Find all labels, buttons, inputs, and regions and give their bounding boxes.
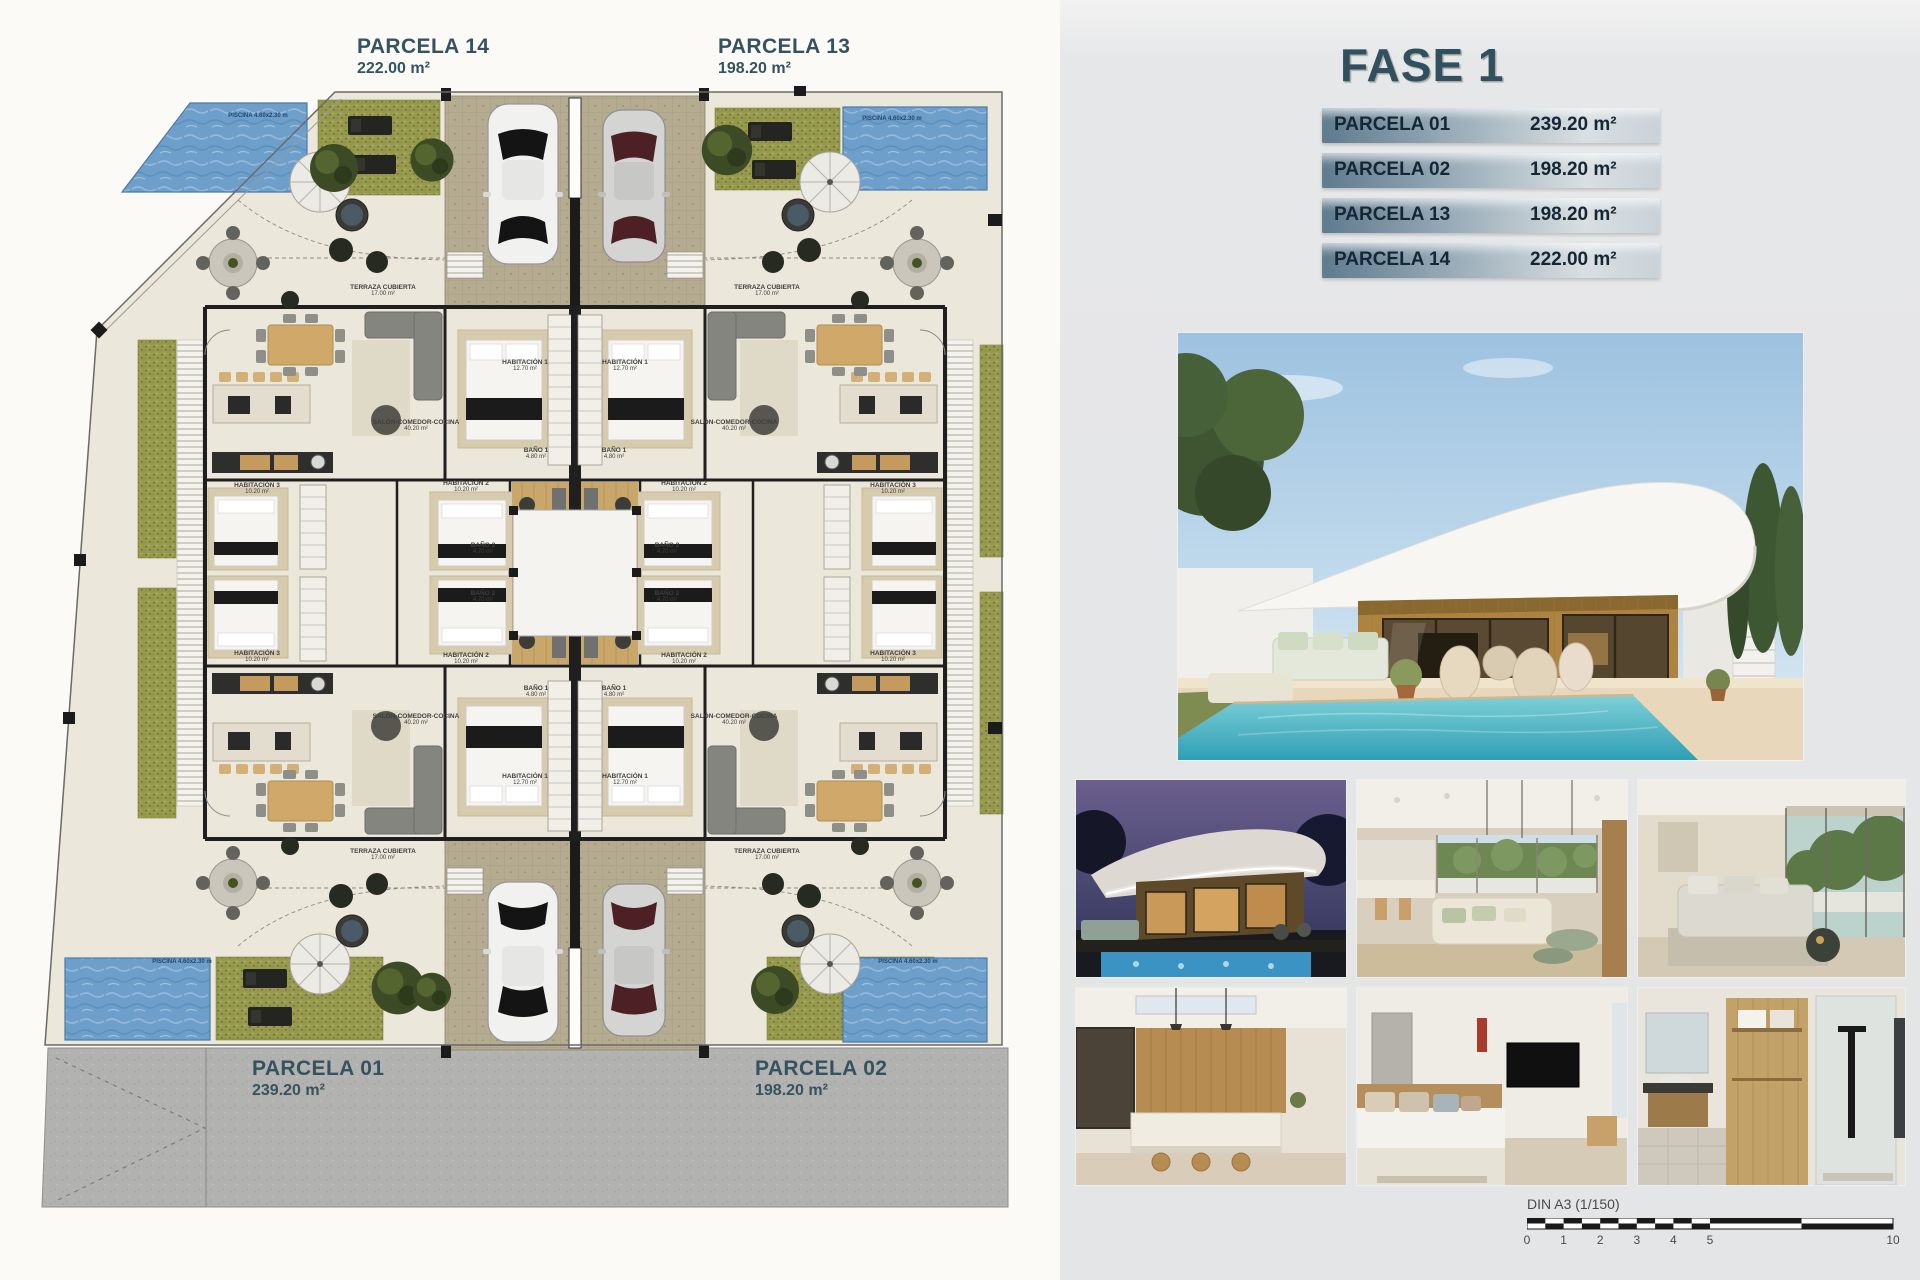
room-label-bano1: BAÑO 14.80 m²	[602, 447, 627, 461]
room-label-salon: SALÓN-COMEDOR-COCINA40.20 m²	[691, 419, 778, 433]
room-label-bano1: BAÑO 14.80 m²	[524, 447, 549, 461]
room-label-hab1: HABITACIÓN 112.70 m²	[502, 359, 548, 373]
parcel-name: PARCELA 14	[1334, 249, 1450, 271]
parcel-area: 198.20 m²	[1530, 204, 1617, 226]
page-title: FASE 1	[1340, 38, 1505, 92]
scale-bar-graphic	[1527, 1218, 1895, 1231]
parcel-label-14: PARCELA 14 222.00 m²	[357, 36, 489, 78]
scale-bar-ticks: 01234510	[1527, 1233, 1893, 1247]
room-label-hab2: HABITACIÓN 210.20 m²	[443, 480, 489, 494]
scale-bar-label: DIN A3 (1/150)	[1527, 1196, 1897, 1212]
pool-label: PISCINA 4.60x2.30 m	[878, 959, 937, 965]
room-label-salon: SALÓN-COMEDOR-COCINA40.20 m²	[691, 713, 778, 727]
room-label-hab2: HABITACIÓN 210.20 m²	[661, 480, 707, 494]
room-label-hab3: HABITACIÓN 310.20 m²	[870, 650, 916, 664]
thumb-night-exterior	[1076, 780, 1346, 977]
parcel-name: PARCELA 13	[1334, 204, 1450, 226]
thumb-bedroom	[1357, 988, 1627, 1185]
parcel-area: 239.20 m²	[1530, 114, 1617, 136]
parcel-label-02: PARCELA 02 198.20 m²	[755, 1058, 887, 1100]
room-label-bano2: BAÑO 24.70 m²	[471, 542, 496, 556]
scale-tick: 4	[1670, 1233, 1677, 1247]
thumb-kitchen	[1076, 988, 1346, 1185]
room-label-bano1: BAÑO 14.80 m²	[602, 685, 627, 699]
scale-tick: 1	[1560, 1233, 1567, 1247]
room-label-salon: SALÓN-COMEDOR-COCINA40.20 m²	[373, 713, 460, 727]
room-label-bano2: BAÑO 24.70 m²	[655, 590, 680, 604]
parcel-table-row: PARCELA 13198.20 m²	[1322, 198, 1660, 233]
room-label-bano1: BAÑO 14.80 m²	[524, 685, 549, 699]
scale-tick: 5	[1707, 1233, 1714, 1247]
room-label-terraza: TERRAZA CUBIERTA17.00 m²	[350, 284, 416, 298]
parcel-table-row: PARCELA 14222.00 m²	[1322, 243, 1660, 278]
room-label-hab2: HABITACIÓN 210.20 m²	[661, 652, 707, 666]
room-label-terraza: TERRAZA CUBIERTA17.00 m²	[350, 848, 416, 862]
parcel-table-row: PARCELA 02198.20 m²	[1322, 153, 1660, 188]
parcel-label-13: PARCELA 13 198.20 m²	[718, 36, 850, 78]
parcel-label-01: PARCELA 01 239.20 m²	[252, 1058, 384, 1100]
room-label-hab2: HABITACIÓN 210.20 m²	[443, 652, 489, 666]
pool-label: PISCINA 4.60x2.30 m	[862, 116, 921, 122]
room-label-salon: SALÓN-COMEDOR-COCINA40.20 m²	[373, 419, 460, 433]
scale-tick: 3	[1633, 1233, 1640, 1247]
plan-labels: PARCELA 14 222.00 m² PARCELA 13 198.20 m…	[0, 0, 1060, 1280]
parcel-name: PARCELA 01	[1334, 114, 1450, 136]
thumb-living-room-2	[1638, 780, 1905, 977]
pool-label: PISCINA 4.60x2.30 m	[228, 113, 287, 119]
scale-bar: DIN A3 (1/150) 01234510	[1527, 1196, 1897, 1256]
room-label-bano2: BAÑO 24.70 m²	[471, 590, 496, 604]
parcel-area: 222.00 m²	[1530, 249, 1617, 271]
pool-label: PISCINA 4.60x2.30 m	[152, 959, 211, 965]
room-label-hab3: HABITACIÓN 310.20 m²	[234, 650, 280, 664]
hero-render	[1178, 333, 1803, 760]
room-label-hab3: HABITACIÓN 310.20 m²	[234, 482, 280, 496]
room-label-terraza: TERRAZA CUBIERTA17.00 m²	[734, 848, 800, 862]
room-label-hab1: HABITACIÓN 112.70 m²	[602, 359, 648, 373]
thumb-living-room-1	[1357, 780, 1627, 977]
scale-tick: 0	[1524, 1233, 1531, 1247]
scale-tick: 10	[1886, 1233, 1899, 1247]
parcel-name: PARCELA 02	[1334, 159, 1450, 181]
thumb-bathroom	[1638, 988, 1905, 1185]
hero-pool	[1178, 695, 1698, 760]
scale-tick: 2	[1597, 1233, 1604, 1247]
room-label-hab1: HABITACIÓN 112.70 m²	[602, 773, 648, 787]
room-label-hab3: HABITACIÓN 310.20 m²	[870, 482, 916, 496]
plan-sheet: PARCELA 14 222.00 m² PARCELA 13 198.20 m…	[0, 0, 1920, 1280]
room-label-bano2: BAÑO 24.70 m²	[655, 542, 680, 556]
parcel-area: 198.20 m²	[1530, 159, 1617, 181]
room-label-terraza: TERRAZA CUBIERTA17.00 m²	[734, 284, 800, 298]
room-label-hab1: HABITACIÓN 112.70 m²	[502, 773, 548, 787]
parcel-table-row: PARCELA 01239.20 m²	[1322, 108, 1660, 143]
